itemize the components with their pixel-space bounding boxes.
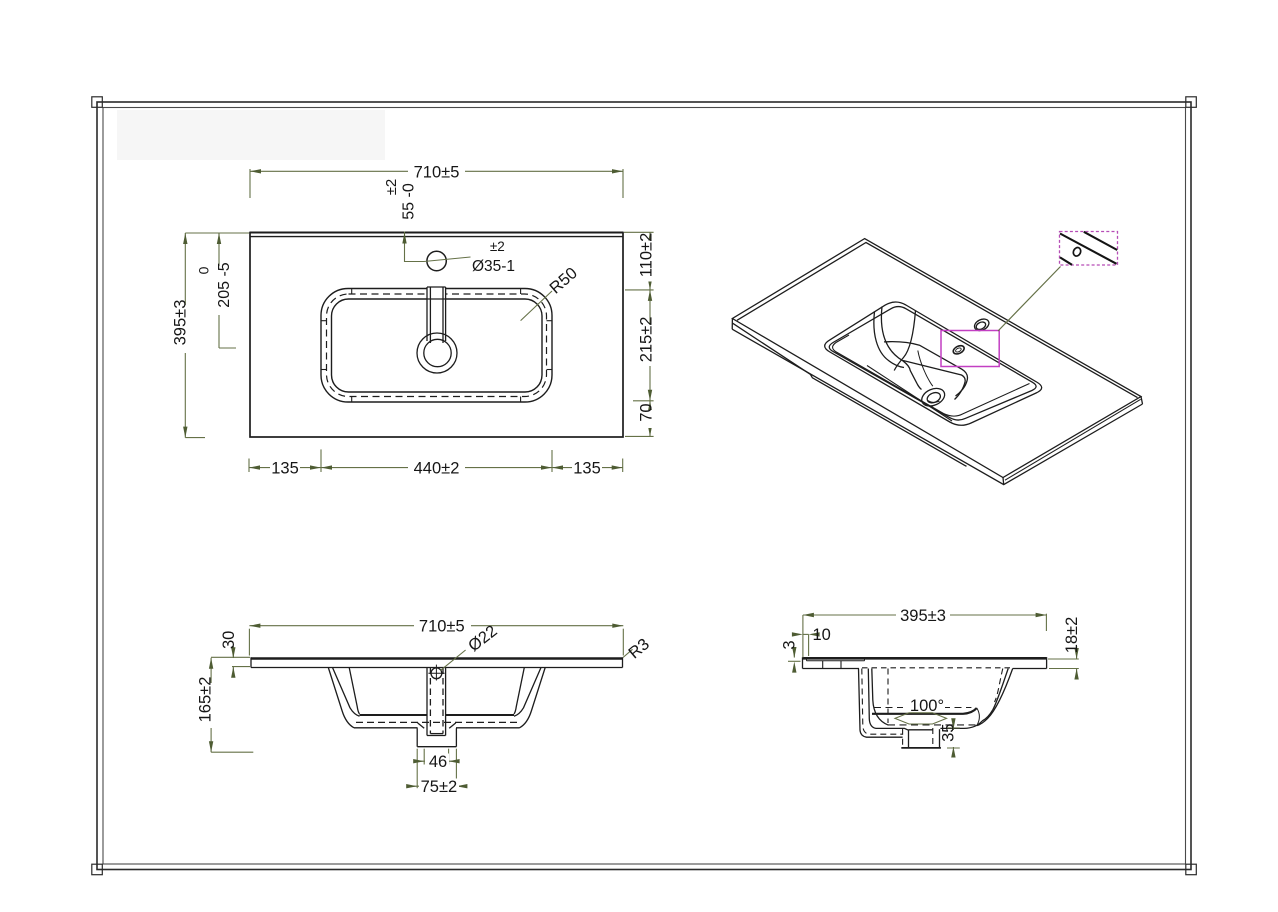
svg-text:R3: R3: [625, 635, 653, 662]
svg-text:395±3: 395±3: [171, 300, 189, 346]
svg-text:710±5: 710±5: [414, 164, 460, 182]
svg-text:±2: ±2: [383, 179, 400, 196]
svg-text:110±2: 110±2: [638, 233, 656, 278]
svg-text:205 -5: 205 -5: [216, 262, 233, 307]
svg-text:165±2: 165±2: [197, 677, 215, 723]
svg-text:10: 10: [813, 626, 831, 644]
svg-text:46: 46: [429, 753, 447, 771]
svg-text:±2: ±2: [490, 239, 505, 254]
svg-text:100°: 100°: [910, 697, 944, 715]
svg-text:30: 30: [220, 631, 238, 649]
svg-text:395±3: 395±3: [900, 607, 946, 625]
svg-text:0: 0: [196, 266, 212, 274]
svg-text:Ø35-1: Ø35-1: [472, 258, 515, 275]
svg-text:135: 135: [573, 460, 601, 478]
svg-text:70: 70: [638, 403, 656, 421]
svg-text:75±2: 75±2: [421, 778, 458, 796]
svg-text:3: 3: [780, 640, 798, 649]
svg-text:710±5: 710±5: [419, 618, 465, 636]
svg-text:35: 35: [939, 724, 957, 742]
svg-text:135: 135: [271, 460, 299, 478]
svg-text:18±2: 18±2: [1063, 617, 1081, 654]
svg-text:440±2: 440±2: [414, 460, 460, 478]
svg-text:55 -0: 55 -0: [401, 183, 418, 220]
svg-text:R50: R50: [546, 264, 581, 297]
svg-text:215±2: 215±2: [638, 317, 656, 363]
